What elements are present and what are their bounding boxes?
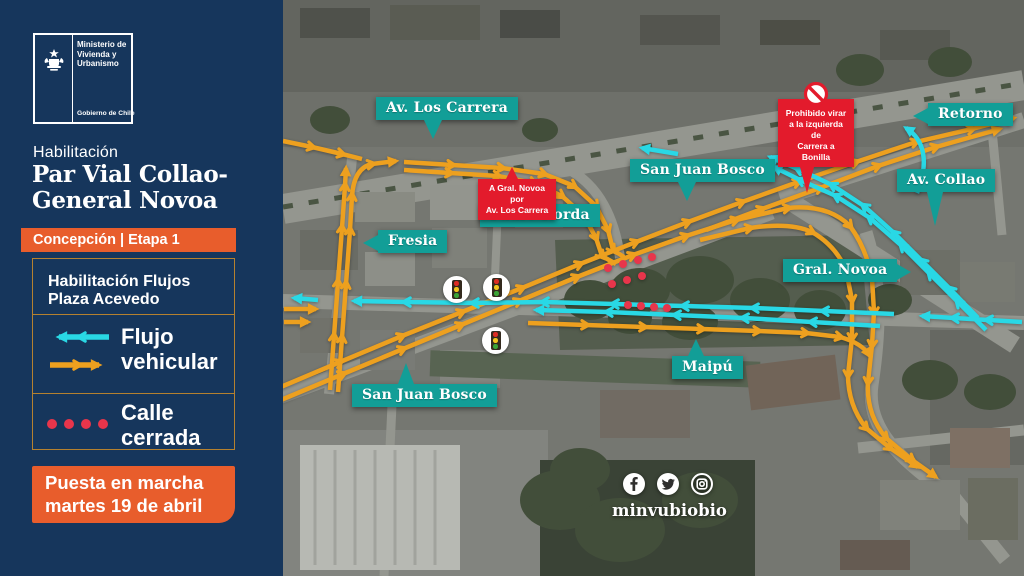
- ministry-logo: Ministerio de Vivienda y Urbanismo Gobie…: [33, 33, 133, 124]
- closed-street-legend-label: Calle cerrada: [121, 401, 201, 450]
- legend-divider: [33, 314, 234, 315]
- warning-line: A Gral. Novoa por: [483, 183, 551, 205]
- label-tail: [688, 339, 704, 356]
- street-label-san-juan-bosco-top: San Juan Bosco: [630, 159, 775, 182]
- street-label-text: Gral. Novoa: [793, 262, 887, 278]
- warning-line: a la izquierda de: [783, 119, 849, 141]
- page-title: Par Vial Collao- General Novoa: [32, 162, 228, 214]
- closed-street-legend-icon: [47, 419, 113, 429]
- legend-heading: Habilitación Flujos Plaza Acevedo: [48, 273, 190, 310]
- label-tail: [398, 363, 414, 384]
- traffic-light-lamps: [491, 331, 501, 350]
- government-name: Gobierno de Chile: [77, 110, 135, 117]
- street-label-text: San Juan Bosco: [362, 387, 487, 403]
- stage-badge: Concepción | Etapa 1: [21, 228, 236, 252]
- instagram-icon: [690, 472, 714, 496]
- street-label-av-collao: Av. Collao: [897, 169, 995, 192]
- street-label-san-juan-bosco-bottom: San Juan Bosco: [352, 384, 497, 407]
- facebook-icon: [622, 472, 646, 496]
- label-tail: [424, 120, 442, 139]
- traffic-light-lamps: [492, 278, 502, 297]
- ministry-name: Ministerio de Vivienda y Urbanismo: [77, 40, 127, 69]
- street-label-maipu: Maipú: [672, 356, 743, 379]
- twitter-icon: [656, 472, 680, 496]
- street-label-av-los-carrera: Av. Los Carrera: [376, 97, 518, 120]
- social-handle: minvubiobio: [612, 501, 724, 520]
- sign-tail: [800, 167, 814, 193]
- warning-sign-gral-novoa-route: A Gral. Novoa por Av. Los Carrera: [478, 179, 556, 220]
- street-label-text: San Juan Bosco: [640, 162, 765, 178]
- label-tail: [363, 235, 378, 251]
- kicker-text: Habilitación: [33, 144, 118, 162]
- flow-maipu-west-stub: [294, 298, 318, 300]
- label-tail: [897, 264, 911, 280]
- sign-tail: [506, 167, 518, 179]
- traffic-light-lamps: [452, 280, 462, 299]
- social-links: minvubiobio: [612, 472, 724, 520]
- traffic-light-icon: [443, 276, 470, 303]
- coat-of-arms-icon: [35, 35, 73, 122]
- street-label-text: Av. Collao: [907, 172, 985, 188]
- street-label-text: Maipú: [682, 359, 733, 375]
- warning-sign-no-left-turn: Prohibido virar a la izquierda de Carrer…: [778, 99, 854, 167]
- street-label-text: Retorno: [938, 106, 1003, 122]
- launch-date-box: Puesta en marcha martes 19 de abril: [32, 466, 235, 523]
- label-tail: [927, 192, 943, 226]
- label-tail: [678, 182, 696, 201]
- warning-line: Prohibido virar: [783, 108, 849, 119]
- sidebar: Ministerio de Vivienda y Urbanismo Gobie…: [0, 0, 283, 576]
- infographic-poster: Av. Los Carrera San Juan Bosco Retorno A…: [0, 0, 1024, 576]
- flow-legend-arrows-icon: [47, 327, 113, 379]
- street-label-fresia: Fresia: [378, 230, 447, 253]
- traffic-light-icon: [482, 327, 509, 354]
- street-label-gral-novoa: Gral. Novoa: [783, 259, 897, 282]
- traffic-light-icon: [483, 274, 510, 301]
- street-label-text: Fresia: [388, 233, 437, 249]
- no-entry-icon: [802, 80, 830, 108]
- legend-divider: [33, 393, 234, 394]
- legend-box: Habilitación Flujos Plaza Acevedo Flujo …: [32, 258, 235, 450]
- street-label-retorno: Retorno: [928, 103, 1013, 126]
- street-label-text: Av. Los Carrera: [386, 100, 508, 116]
- flow-legend-label: Flujo vehicular: [121, 325, 218, 374]
- label-tail: [913, 108, 928, 124]
- warning-line: Av. Los Carrera: [483, 205, 551, 216]
- warning-line: Carrera a Bonilla: [783, 141, 849, 163]
